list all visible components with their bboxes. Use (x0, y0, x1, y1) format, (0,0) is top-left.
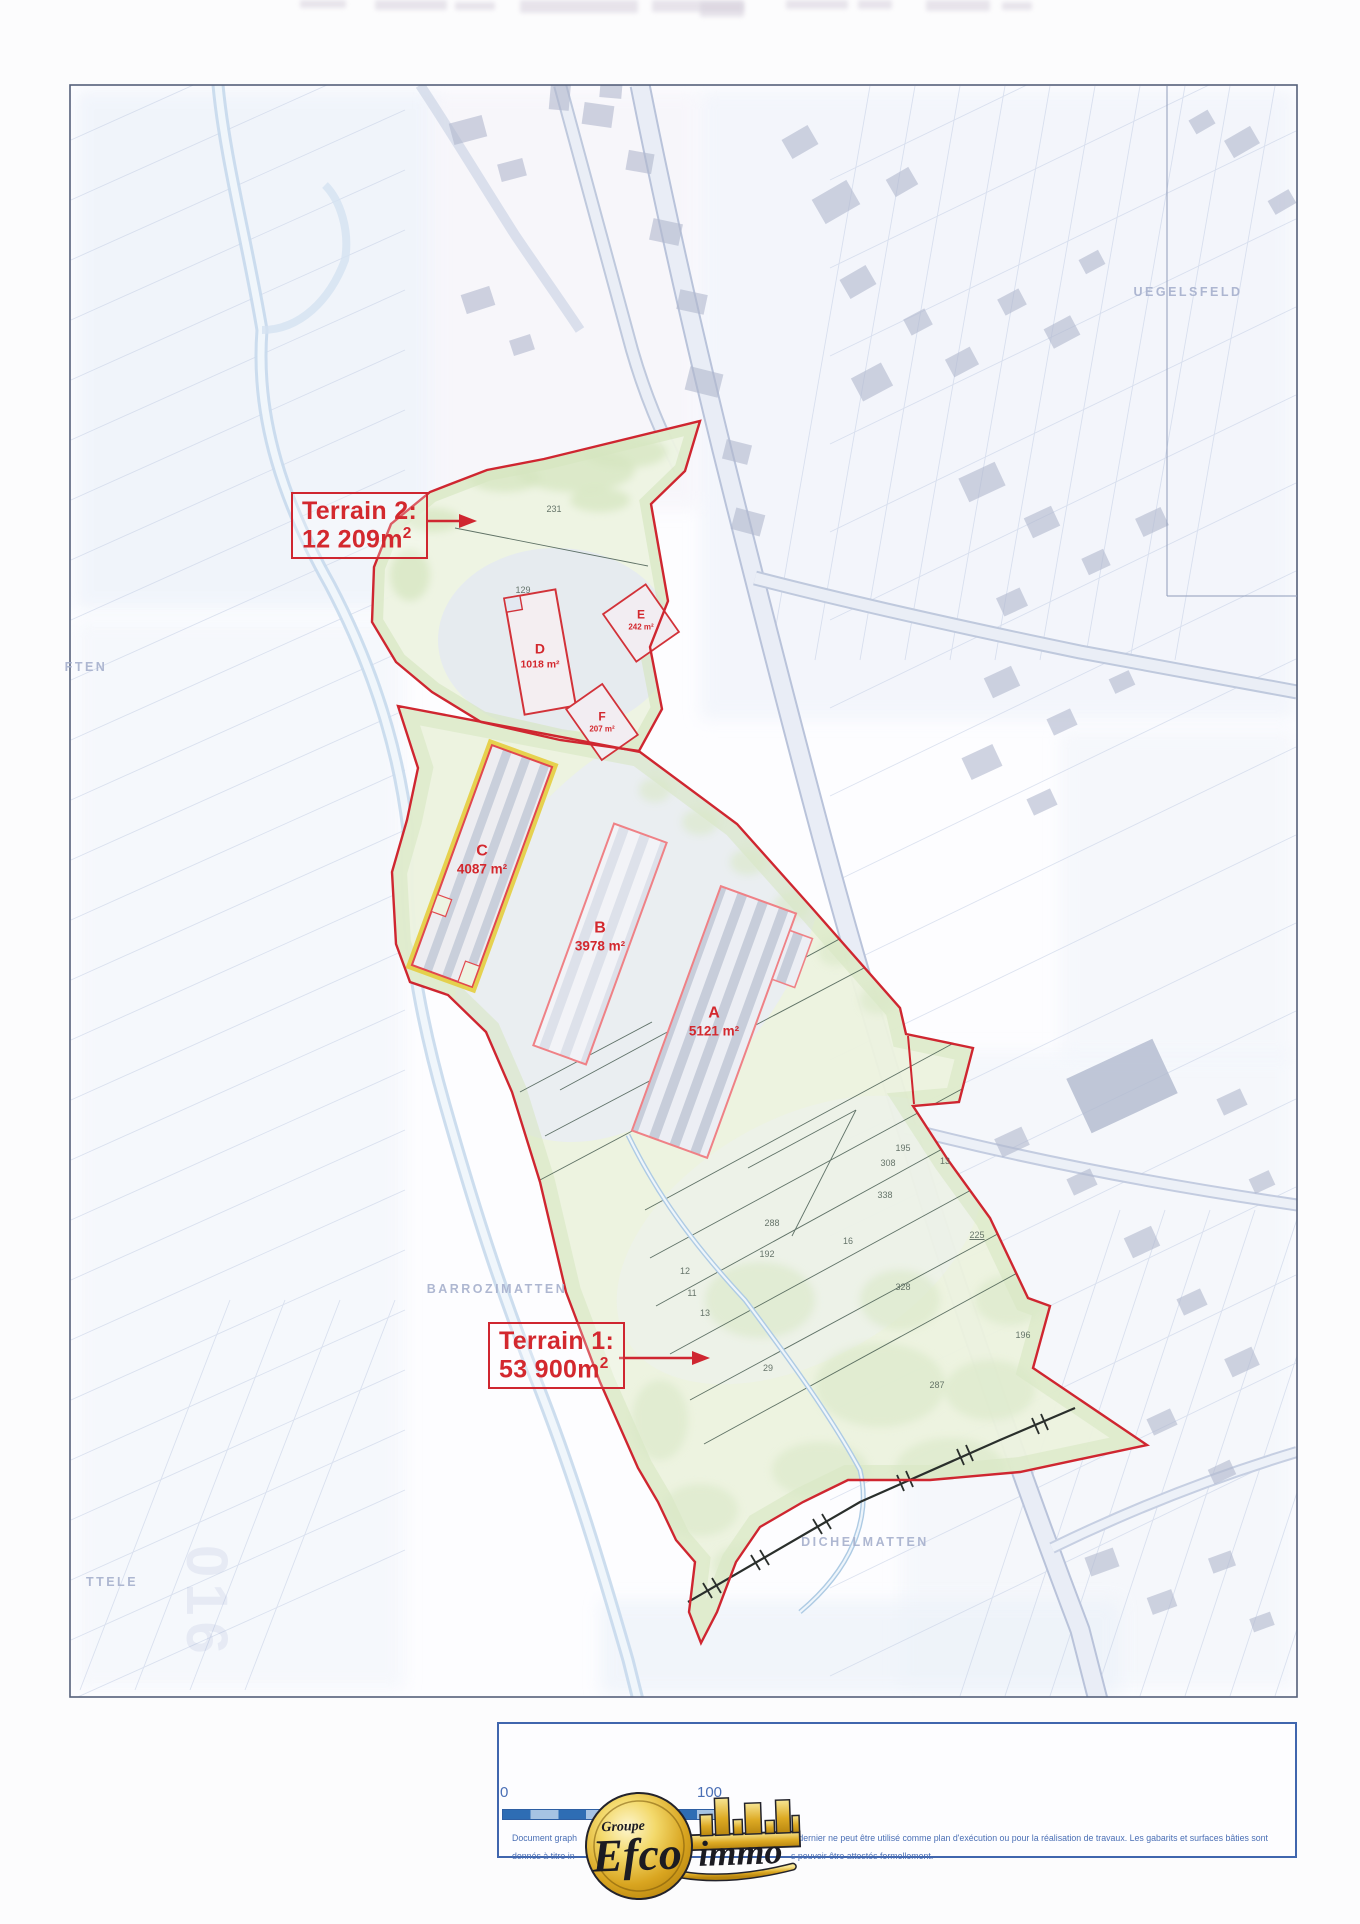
parcel-number: 192 (759, 1249, 774, 1259)
parcel-number: 11 (687, 1288, 696, 1298)
scan-artifact (375, 0, 447, 10)
parcel-number: 328 (895, 1282, 910, 1292)
scan-artifact (858, 0, 892, 9)
building-b-label: B 3978 m² (575, 919, 625, 956)
logo-efco-text: Efco (590, 1828, 682, 1882)
scan-artifact (455, 2, 495, 10)
skyline-teeth (699, 1795, 799, 1835)
disclaimer-line1-left: Document graph (512, 1833, 577, 1843)
scan-artifact (700, 2, 744, 17)
disclaimer-line2-left: donnés à titre in (512, 1851, 575, 1861)
parcel-number: 129 (515, 585, 530, 595)
scan-artifact (520, 0, 638, 13)
scanned-site-plan-page: 016 Terrain 2: 12 209m2 Terrain 1: 53 90… (0, 0, 1360, 1924)
terrain-2-label: Terrain 2: 12 209m2 (291, 492, 428, 559)
parcel-number: 195 (895, 1143, 910, 1153)
place-name: FTEN (65, 660, 108, 674)
parcel-number: 231 (546, 504, 561, 514)
logo-immo-text: immo (698, 1831, 783, 1874)
parcel-number: 308 (880, 1158, 895, 1168)
disclaimer-line2-right: s pouvoir être attestés formellement. (791, 1851, 1289, 1861)
efco-immo-logo: Groupe Efco immo (578, 1758, 813, 1924)
parcel-number: 287 (929, 1380, 944, 1390)
place-name: UEGELSFELD (1133, 285, 1242, 299)
scan-artifact (300, 0, 346, 8)
terrain-1-title: Terrain 1: (499, 1327, 614, 1355)
building-c-label: C 4087 m² (457, 842, 507, 879)
building-f-label: F 207 m² (589, 710, 614, 735)
parcel-number: 29 (763, 1363, 773, 1373)
parcel-number: 13 (940, 1156, 950, 1166)
building-e-label: E 242 m² (628, 608, 653, 633)
disclaimer-line1-right: e dernier ne peut être utilisé comme pla… (791, 1833, 1289, 1843)
parcel-number: 12 (680, 1266, 690, 1276)
terrain-2-area: 12 209m (302, 525, 403, 553)
terrain-2-title: Terrain 2: (302, 497, 417, 525)
terrain-1-area: 53 900m (499, 1355, 600, 1383)
faint-watermark-number: 016 (110, 1545, 240, 1665)
scan-artifact (786, 0, 848, 9)
scan-artifact (926, 0, 990, 11)
building-a-label: A 5121 m² (689, 1004, 739, 1041)
parcel-number: 225 (969, 1230, 984, 1240)
terrain-1-label: Terrain 1: 53 900m2 (488, 1322, 625, 1389)
place-name: DICHELMATTEN (801, 1535, 929, 1549)
parcel-number: 196 (1015, 1330, 1030, 1340)
parcel-number: 13 (700, 1308, 710, 1318)
place-name: TTELE (86, 1575, 138, 1589)
place-name: BARROZIMATTEN (427, 1282, 568, 1296)
parcel-number: 288 (764, 1218, 779, 1228)
parcel-number: 338 (877, 1190, 892, 1200)
parcel-number: 16 (843, 1236, 853, 1246)
scale-start-label: 0 (500, 1784, 508, 1801)
building-d-label: D 1018 m² (520, 641, 559, 672)
scan-artifact (1002, 2, 1032, 10)
